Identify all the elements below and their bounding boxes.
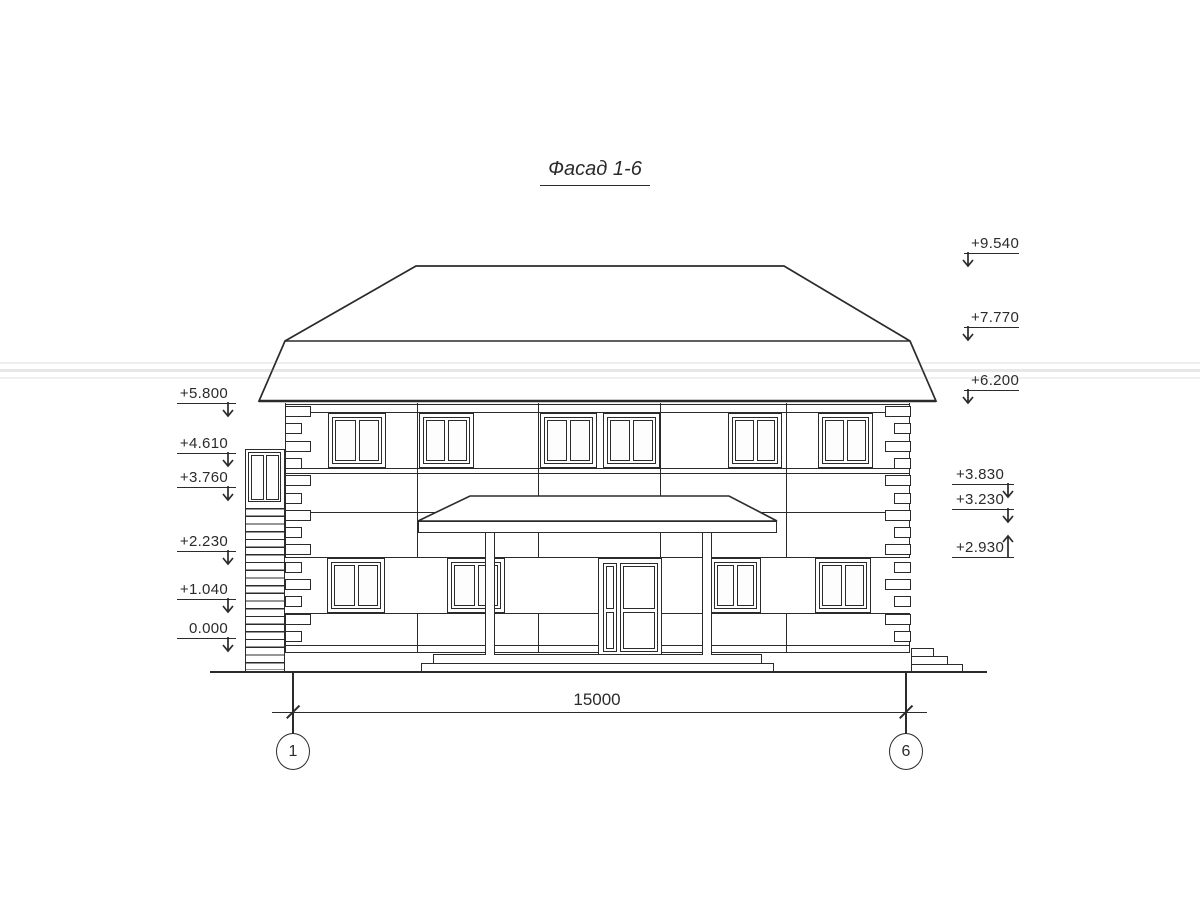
elevation-mark: +6.200 [964, 370, 1019, 391]
elevation-arrow-icon [961, 389, 975, 405]
window-pane [547, 420, 567, 461]
quoin-block [285, 441, 311, 452]
elevation-value: +1.040 [180, 581, 228, 598]
window-pane [448, 420, 467, 461]
quoin-block [885, 510, 911, 521]
axis-bubble-1: 1 [276, 733, 310, 770]
quoin-block [285, 596, 302, 607]
axis-label-6: 6 [902, 743, 911, 760]
window-first-floor-1 [327, 558, 385, 613]
elevation-arrow-icon [961, 252, 975, 268]
window-first-floor-3 [710, 558, 761, 613]
elevation-arrow-icon [1001, 508, 1015, 524]
window-pane [633, 420, 653, 461]
elevation-value: +2.930 [956, 539, 1004, 556]
elevation-value: +9.540 [971, 235, 1019, 252]
quoin-block [285, 458, 302, 469]
door-leaf [620, 563, 658, 652]
quoin-block [285, 475, 311, 486]
quoin-block [285, 544, 311, 555]
elevation-value: +3.830 [956, 466, 1004, 483]
quoin-block [285, 423, 302, 434]
quoin-block [285, 406, 311, 417]
elevation-arrow-icon [221, 452, 235, 468]
quoin-block [894, 527, 911, 538]
roof-outline [235, 258, 945, 408]
window-pane [757, 420, 776, 461]
elevation-mark: +1.040 [177, 579, 236, 600]
elevation-mark: +3.230 [952, 489, 1014, 510]
quoin-block [894, 493, 911, 504]
window-sash [423, 417, 470, 464]
ground-line [210, 671, 987, 673]
door-glass-upper [623, 566, 655, 609]
elevation-mark: +9.540 [964, 233, 1019, 254]
window-sash [607, 417, 656, 464]
quoin-block [285, 579, 311, 590]
quoin-block [285, 493, 302, 504]
elevation-arrow-up-icon [1001, 534, 1015, 558]
elevation-mark: +2.930 [952, 537, 1014, 558]
elevation-value: +7.770 [971, 309, 1019, 326]
quoin-block [285, 527, 302, 538]
quoin-block [285, 614, 311, 625]
window-second-floor-2 [419, 413, 474, 468]
elevation-value: +6.200 [971, 372, 1019, 389]
elevation-mark: +7.770 [964, 307, 1019, 328]
extension-line-right [905, 673, 906, 734]
quoin-block [894, 596, 911, 607]
window-first-floor-2 [447, 558, 505, 613]
window-sash [819, 562, 867, 609]
window-second-floor-6 [818, 413, 873, 468]
window-pane [825, 420, 844, 461]
window-pane [847, 420, 866, 461]
elevation-mark: +4.610 [177, 433, 236, 454]
quoin-block [885, 544, 911, 555]
door-sidelight [603, 563, 617, 652]
drawing-title-text: Фасад 1-6 [540, 158, 650, 186]
elevation-value: +5.800 [180, 385, 228, 402]
quoin-block [894, 423, 911, 434]
window-pane [426, 420, 445, 461]
quoin-block [885, 441, 911, 452]
annex-window [248, 452, 281, 502]
window-first-floor-4 [815, 558, 871, 613]
canopy-post-left [485, 533, 495, 655]
window-sash [822, 417, 869, 464]
quoin-block [894, 631, 911, 642]
quoin-block [885, 406, 911, 417]
elevation-mark: +5.800 [177, 383, 236, 404]
entrance-door [598, 558, 662, 655]
window-sash [544, 417, 593, 464]
elevation-arrow-icon [221, 486, 235, 502]
axis-bubble-6: 6 [889, 733, 923, 770]
window-pane [822, 565, 842, 606]
window-pane [334, 565, 355, 606]
axis-label-1: 1 [289, 743, 298, 760]
quoin-block [285, 562, 302, 573]
window-pane [570, 420, 590, 461]
window-pane [335, 420, 356, 461]
window-pane [845, 565, 865, 606]
window-sash [332, 417, 382, 464]
window-sash [732, 417, 778, 464]
window-pane [610, 420, 630, 461]
door-sidelight-upper [606, 566, 614, 609]
elevation-mark: +3.830 [952, 464, 1014, 485]
canopy-fascia [418, 521, 777, 533]
elevation-value: +3.760 [180, 469, 228, 486]
elevation-mark: +3.760 [177, 467, 236, 488]
window-pane [717, 565, 734, 606]
window-sash [331, 562, 381, 609]
quoin-block [885, 579, 911, 590]
quoin-block [285, 631, 302, 642]
window-second-floor-1 [328, 413, 386, 468]
sill-belt-line [285, 468, 910, 469]
quoin-block [894, 458, 911, 469]
drawing-title: Фасад 1-6 [470, 158, 720, 186]
sill-belt-line-2 [285, 473, 910, 474]
annex-stair-treads [246, 508, 284, 670]
canopy-post-right [702, 533, 712, 655]
window-second-floor-3 [540, 413, 597, 468]
door-sidelight-lower [606, 612, 614, 649]
extension-line-left [292, 673, 293, 734]
elevation-arrow-icon [221, 598, 235, 614]
elevation-arrow-icon [221, 637, 235, 653]
window-pane [359, 420, 380, 461]
elevation-mark: 0.000 [177, 618, 236, 639]
stair-annex [245, 449, 285, 672]
window-pane [454, 565, 475, 606]
elevation-value: +2.230 [180, 533, 228, 550]
elevation-value: 0.000 [189, 620, 228, 637]
window-second-floor-5 [728, 413, 782, 468]
drawing-sheet: Фасад 1-6 [0, 0, 1200, 900]
annex-window-pane [251, 455, 264, 500]
elevation-arrow-icon [221, 402, 235, 418]
elevation-value: +3.230 [956, 491, 1004, 508]
annex-window-pane [266, 455, 279, 500]
window-second-floor-4 [603, 413, 660, 468]
elevation-arrow-icon [961, 326, 975, 342]
quoin-block [885, 475, 911, 486]
window-sash [714, 562, 757, 609]
door-panel-lower [623, 612, 655, 649]
window-pane [735, 420, 754, 461]
quoin-block [885, 614, 911, 625]
dimension-line [272, 712, 927, 714]
elevation-mark: +2.230 [177, 531, 236, 552]
window-pane [358, 565, 379, 606]
quoin-block [285, 510, 311, 521]
elevation-value: +4.610 [180, 435, 228, 452]
window-pane [737, 565, 754, 606]
quoin-block [894, 562, 911, 573]
elevation-arrow-icon [221, 550, 235, 566]
dimension-text: 15000 [537, 690, 657, 710]
